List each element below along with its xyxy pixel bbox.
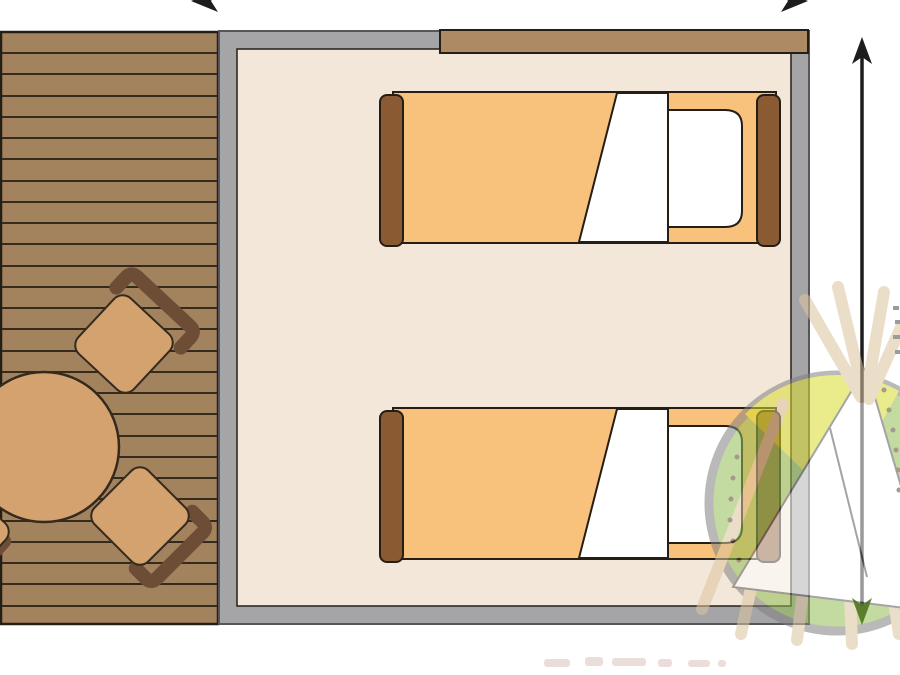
floorplan-canvas <box>0 0 900 675</box>
entrance-beam <box>440 30 808 53</box>
bed-bottom-footboard <box>380 411 403 562</box>
floorplan-svg <box>0 0 900 675</box>
bed-top-pillow <box>668 110 742 227</box>
bed-top-headboard <box>757 95 780 246</box>
bed-top <box>380 92 780 246</box>
bed-top-footboard <box>380 95 403 246</box>
